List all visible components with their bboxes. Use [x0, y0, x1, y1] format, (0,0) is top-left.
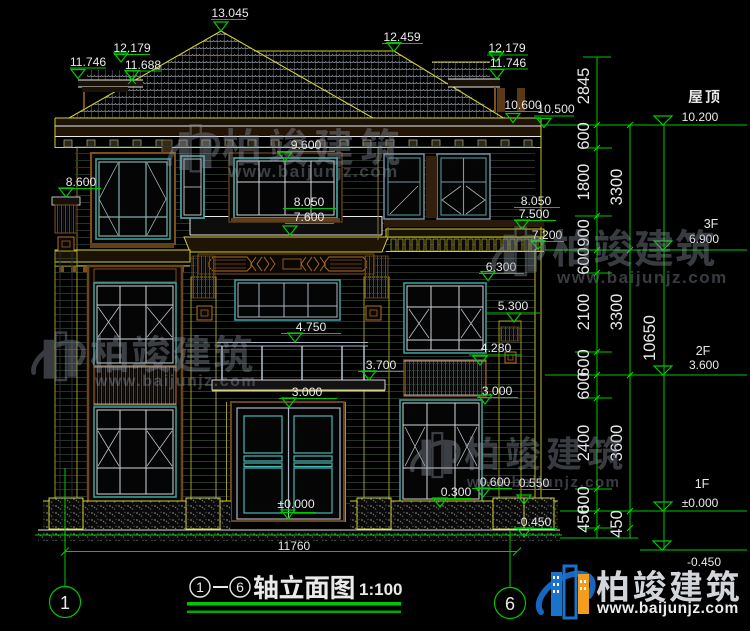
svg-text:3.000: 3.000 [482, 384, 513, 398]
svg-text:2F: 2F [696, 344, 711, 358]
svg-text:450: 450 [608, 510, 626, 538]
svg-text:6: 6 [505, 594, 515, 614]
svg-text:11.746: 11.746 [490, 56, 527, 70]
svg-text:3300: 3300 [608, 169, 626, 206]
svg-text:www.baijunjz.com: www.baijunjz.com [596, 600, 739, 617]
svg-text:www.baijunjz.com: www.baijunjz.com [227, 162, 399, 181]
svg-text:1800: 1800 [575, 164, 593, 201]
svg-text:2100: 2100 [575, 294, 593, 331]
svg-text:600: 600 [575, 122, 593, 150]
svg-text:3.700: 3.700 [366, 358, 397, 372]
svg-text:www.baijunjz.com: www.baijunjz.com [466, 474, 620, 491]
svg-text:3.600: 3.600 [689, 358, 719, 372]
svg-text:-0.450: -0.450 [687, 555, 721, 569]
svg-text:3F: 3F [704, 217, 719, 231]
svg-text:1F: 1F [695, 477, 710, 491]
svg-text:3.000: 3.000 [292, 385, 323, 399]
svg-text:-0.450: -0.450 [517, 515, 552, 529]
svg-text:1: 1 [60, 593, 70, 613]
svg-text:7.500: 7.500 [519, 207, 550, 221]
svg-text:www.baijunjz.com: www.baijunjz.com [94, 373, 257, 390]
svg-text:1:100: 1:100 [359, 580, 402, 599]
svg-text:13.045: 13.045 [211, 6, 248, 20]
svg-text:8.050: 8.050 [294, 195, 325, 209]
svg-text:www.baijunjz.com: www.baijunjz.com [556, 268, 728, 287]
svg-text:1: 1 [196, 579, 204, 595]
svg-text:10.200: 10.200 [682, 110, 719, 124]
svg-text:11.746: 11.746 [70, 55, 107, 69]
svg-text:4.280: 4.280 [481, 341, 512, 355]
svg-text:4.750: 4.750 [296, 320, 327, 334]
svg-text:600: 600 [575, 372, 593, 400]
svg-text:8.600: 8.600 [66, 175, 97, 189]
svg-text:10.600: 10.600 [504, 98, 541, 112]
svg-text:10650: 10650 [641, 315, 659, 361]
svg-text:7.600: 7.600 [294, 210, 325, 224]
svg-text:2845: 2845 [575, 68, 593, 105]
svg-text:±0.000: ±0.000 [682, 496, 719, 510]
svg-text:8.050: 8.050 [521, 194, 552, 208]
svg-text:5.300: 5.300 [498, 299, 529, 313]
svg-text:450: 450 [575, 505, 593, 533]
svg-text:10.500: 10.500 [537, 102, 574, 116]
svg-text:11760: 11760 [278, 539, 311, 553]
svg-text:±0.000: ±0.000 [277, 497, 314, 511]
svg-text:6: 6 [236, 579, 244, 595]
svg-text:3300: 3300 [608, 294, 626, 331]
